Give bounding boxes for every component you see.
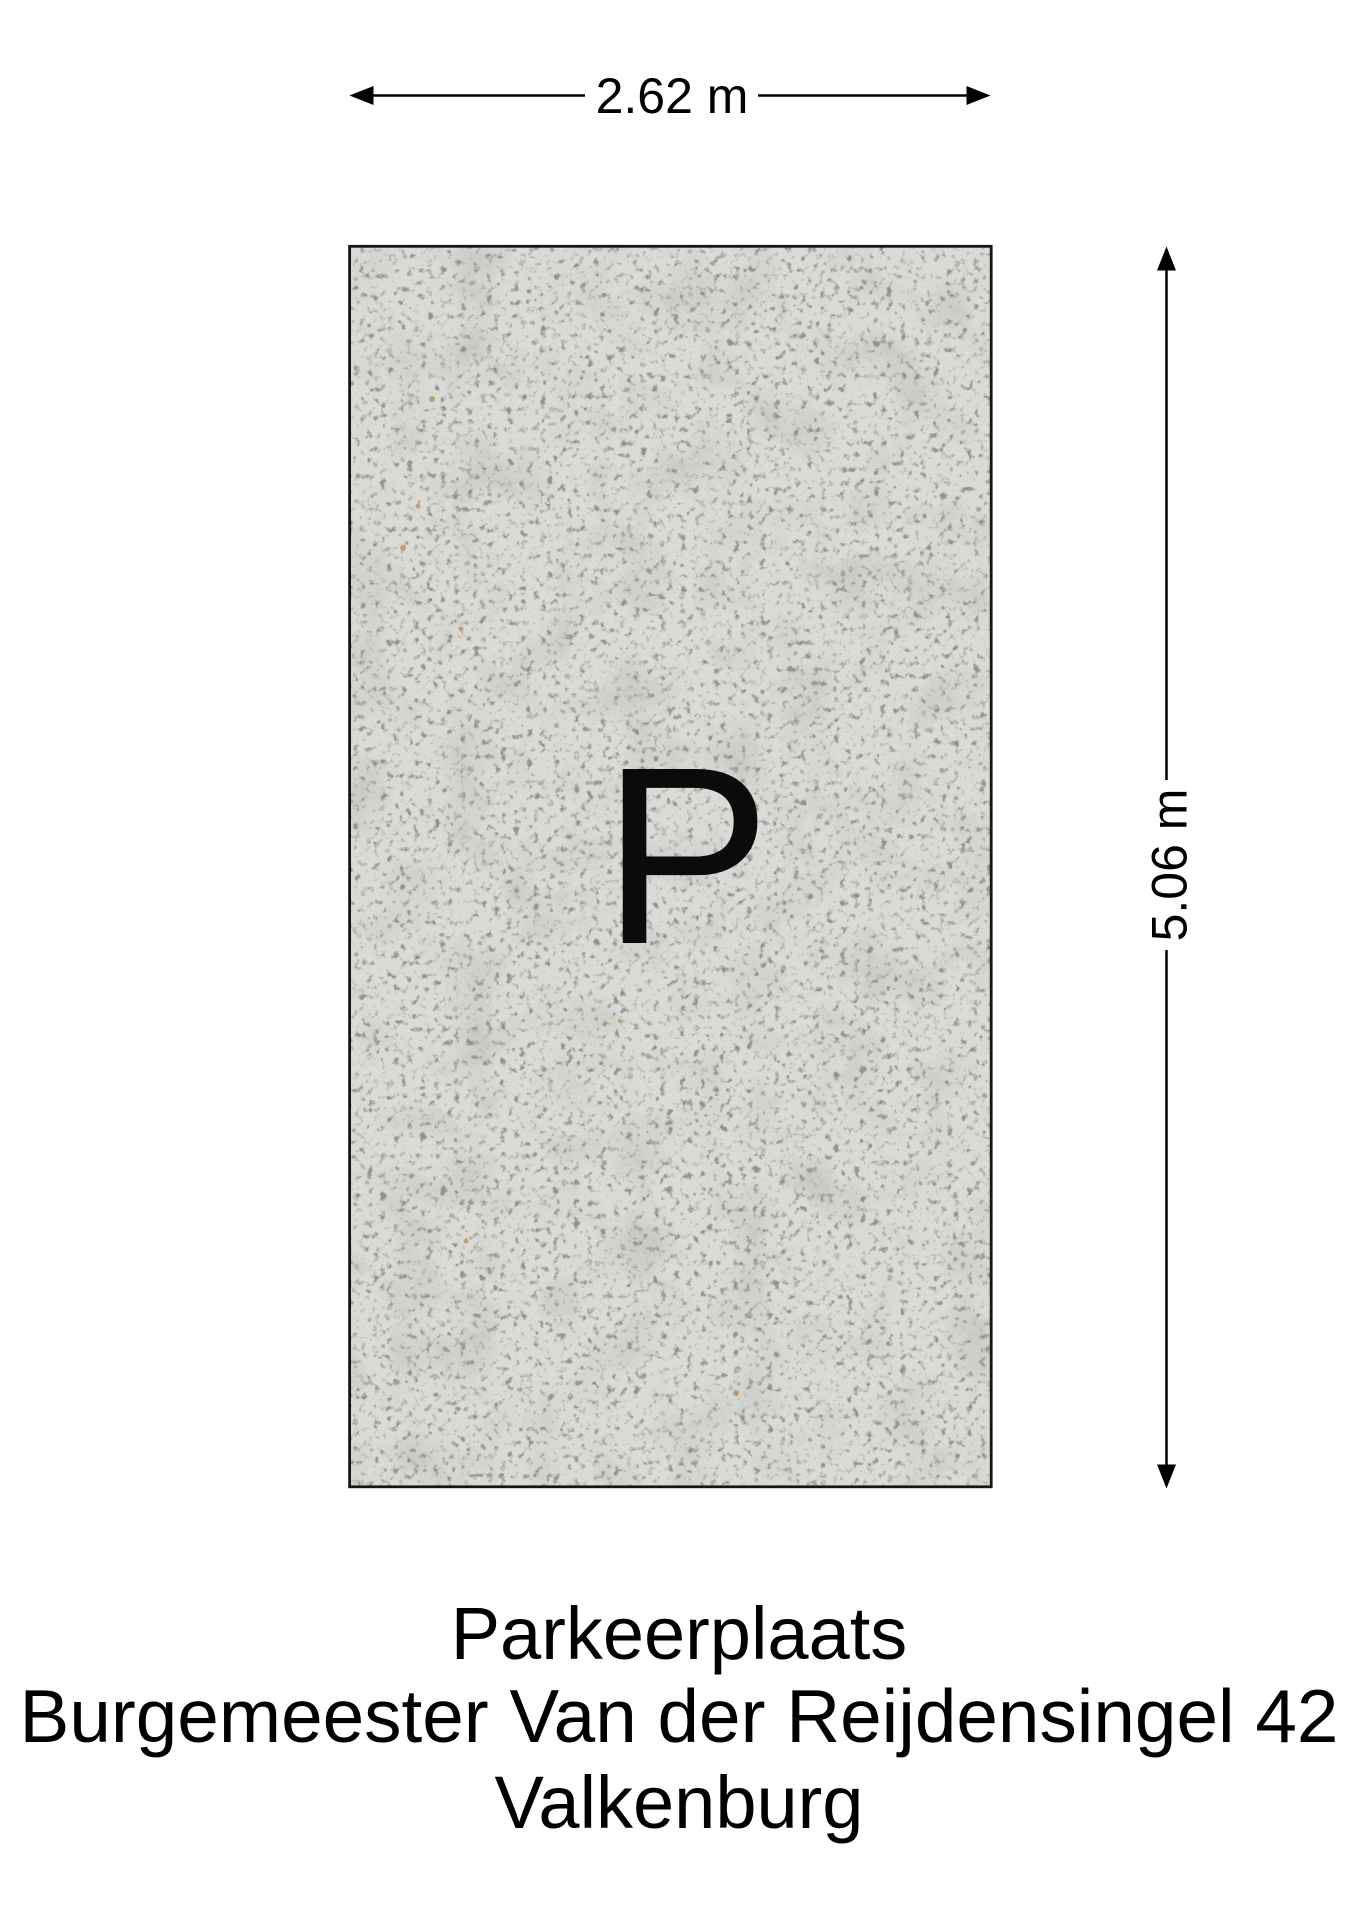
svg-text:Parkeerplaats: Parkeerplaats bbox=[451, 1592, 908, 1675]
svg-text:2.62 m: 2.62 m bbox=[596, 68, 749, 124]
svg-text:Valkenburg: Valkenburg bbox=[495, 1761, 864, 1844]
svg-text:5.06 m: 5.06 m bbox=[1142, 789, 1198, 942]
svg-text:P: P bbox=[602, 714, 771, 997]
svg-text:Burgemeester Van der Reijdensi: Burgemeester Van der Reijdensingel 42 bbox=[20, 1674, 1339, 1758]
